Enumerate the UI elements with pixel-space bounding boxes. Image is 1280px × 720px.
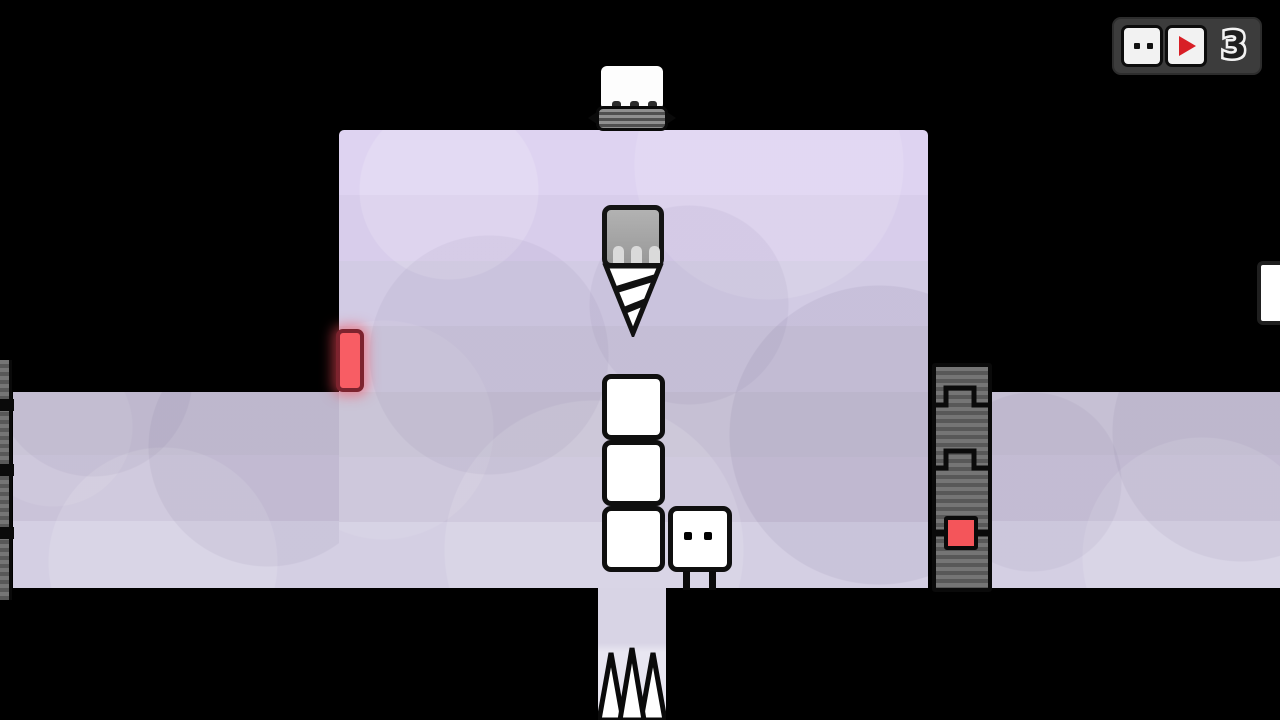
stacked-box xyxy=(602,374,665,440)
red-switch xyxy=(944,516,978,550)
play-triangle-icon xyxy=(1179,36,1196,56)
stacked-box xyxy=(602,506,665,572)
track-notches-icon xyxy=(932,363,992,592)
play-icon xyxy=(1165,25,1207,67)
hud-eye-icon xyxy=(1134,43,1140,49)
character-face-icon xyxy=(1121,25,1163,67)
drill-prong xyxy=(649,246,660,263)
crusher-arrow-left-icon xyxy=(588,112,597,124)
hud-eye-icon xyxy=(1147,43,1153,49)
hud-panel: 3 xyxy=(1112,17,1262,75)
character-leg-right xyxy=(709,571,716,590)
character-eye-left xyxy=(684,532,692,540)
drill-prong xyxy=(613,246,624,263)
character-leg-left xyxy=(683,571,690,590)
track-tab xyxy=(0,464,14,476)
game-viewport[interactable]: 3 xyxy=(0,0,1280,720)
crusher-arrow-right-icon xyxy=(667,112,676,124)
track-tab xyxy=(0,399,14,411)
crusher-base xyxy=(596,106,668,131)
track-tab xyxy=(0,527,14,539)
floor-spikes-icon xyxy=(598,645,666,720)
track-strip-left xyxy=(0,360,12,600)
character-qbby xyxy=(668,506,732,572)
character-eye-right xyxy=(704,532,712,540)
right-platform xyxy=(992,392,1280,588)
drill-cone-icon xyxy=(598,263,668,337)
stacked-box xyxy=(602,440,665,506)
red-door xyxy=(336,329,364,392)
white-edge-box xyxy=(1257,261,1280,325)
hud-count: 3 xyxy=(1212,24,1256,68)
left-platform xyxy=(13,392,339,588)
drill-prong xyxy=(631,246,642,263)
